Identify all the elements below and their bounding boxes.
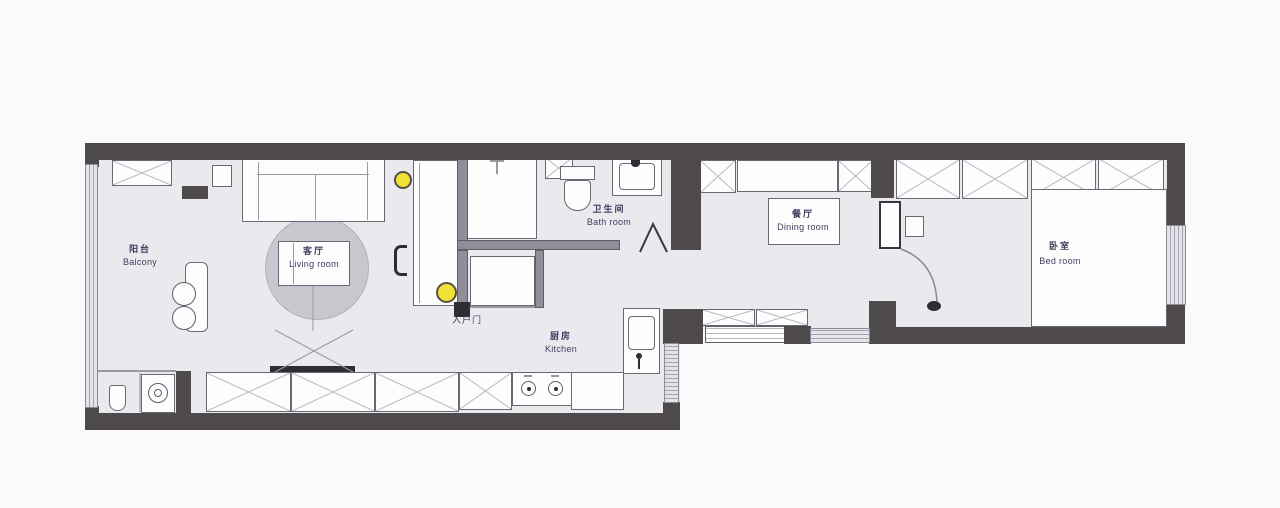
tv-cabinet	[375, 372, 459, 412]
plant-pot	[172, 306, 196, 330]
burner-center	[527, 387, 531, 391]
stove	[512, 372, 572, 406]
dining-bench-cabinet	[702, 309, 755, 326]
dining-bench-cabinet	[756, 309, 808, 326]
sofa-back-line	[257, 174, 369, 175]
shower	[466, 157, 537, 239]
dining-cabinet-long	[737, 160, 838, 192]
entry-cabinet	[470, 256, 535, 306]
shower-head-stem	[496, 160, 498, 174]
kitchen-faucet-stem	[638, 359, 640, 369]
wall-kitchen-right-upper	[663, 309, 703, 344]
toilet-small	[109, 385, 126, 411]
bedroom-door-leaf	[879, 201, 901, 249]
wall-bedroom-door-stub-top	[871, 158, 894, 198]
wall-laundry-column	[176, 371, 191, 415]
washing-machine-drum-inner	[154, 389, 162, 397]
kitchen-sink-bowl	[628, 316, 655, 350]
stove-knob	[524, 375, 532, 377]
desk-chair	[394, 245, 407, 276]
bathroom-wall-left	[457, 158, 468, 250]
sofa	[242, 159, 385, 222]
laundry-counter-edge	[93, 370, 176, 372]
bathroom-wall-bottom	[457, 240, 620, 250]
stove-knob	[551, 375, 559, 377]
shower-head-bar	[490, 160, 504, 162]
radiator-bench	[705, 326, 786, 343]
window-dining-bottom	[810, 328, 870, 343]
kitchen-label: 厨房 Kitchen	[545, 330, 577, 356]
wall-kitchen-right-lower	[663, 402, 680, 430]
wall-dining-bottom-chunk	[784, 326, 811, 344]
dining-cabinet	[838, 160, 873, 192]
entry-threshold-line	[468, 306, 544, 308]
balcony-cabinet	[112, 160, 172, 186]
window-bedroom-right	[1166, 225, 1186, 305]
sofa-armrest-right	[367, 162, 368, 220]
kitchen-sink-unit	[623, 308, 660, 374]
balcony-label: 阳台 Balcony	[123, 243, 157, 269]
burner-center	[554, 387, 558, 391]
wall-right-top	[1167, 143, 1185, 226]
wall-balcony-stub	[182, 186, 208, 199]
dining-cabinet	[700, 160, 736, 193]
tv-cabinet	[291, 372, 375, 412]
toilet-tank	[560, 166, 595, 180]
ceiling-light	[436, 282, 457, 303]
desk-edge-line	[419, 163, 420, 303]
sofa-cushion-divider	[315, 174, 316, 220]
wall-bottom-left	[85, 413, 680, 430]
side-table	[212, 165, 232, 187]
wardrobe	[896, 159, 960, 199]
window-kitchen-right	[664, 343, 679, 403]
living-room-label: 客厅 Living room	[289, 245, 339, 271]
wall-bath-dining-divider	[671, 158, 701, 250]
sofa-armrest-left	[258, 162, 259, 220]
wall-right-bottom	[1167, 304, 1185, 344]
bath-room-label: 卫生间 Bath room	[587, 203, 631, 229]
entry-door-label: 入户门	[452, 314, 482, 327]
wall-bottom-right	[869, 327, 1185, 344]
floor-plan: 阳台 Balcony 客厅 Living room 卫生间 Bath room …	[0, 0, 1280, 508]
tv-cabinet	[206, 372, 291, 412]
kitchen-cabinet	[459, 372, 512, 410]
bedroom-shelf	[905, 216, 924, 237]
window-balcony-left	[85, 164, 98, 408]
plant-pot	[172, 282, 196, 306]
kitchen-counter	[571, 372, 624, 410]
dining-room-label: 餐厅 Dining room	[777, 208, 829, 234]
bathroom-sink-basin	[619, 163, 655, 190]
entry-wall-right	[535, 250, 544, 308]
wardrobe	[962, 159, 1028, 199]
bathroom-sink	[612, 157, 662, 196]
ceiling-light	[394, 171, 412, 189]
bed-room-label: 卧室 Bed room	[1039, 239, 1080, 269]
wall-top	[85, 143, 1185, 160]
